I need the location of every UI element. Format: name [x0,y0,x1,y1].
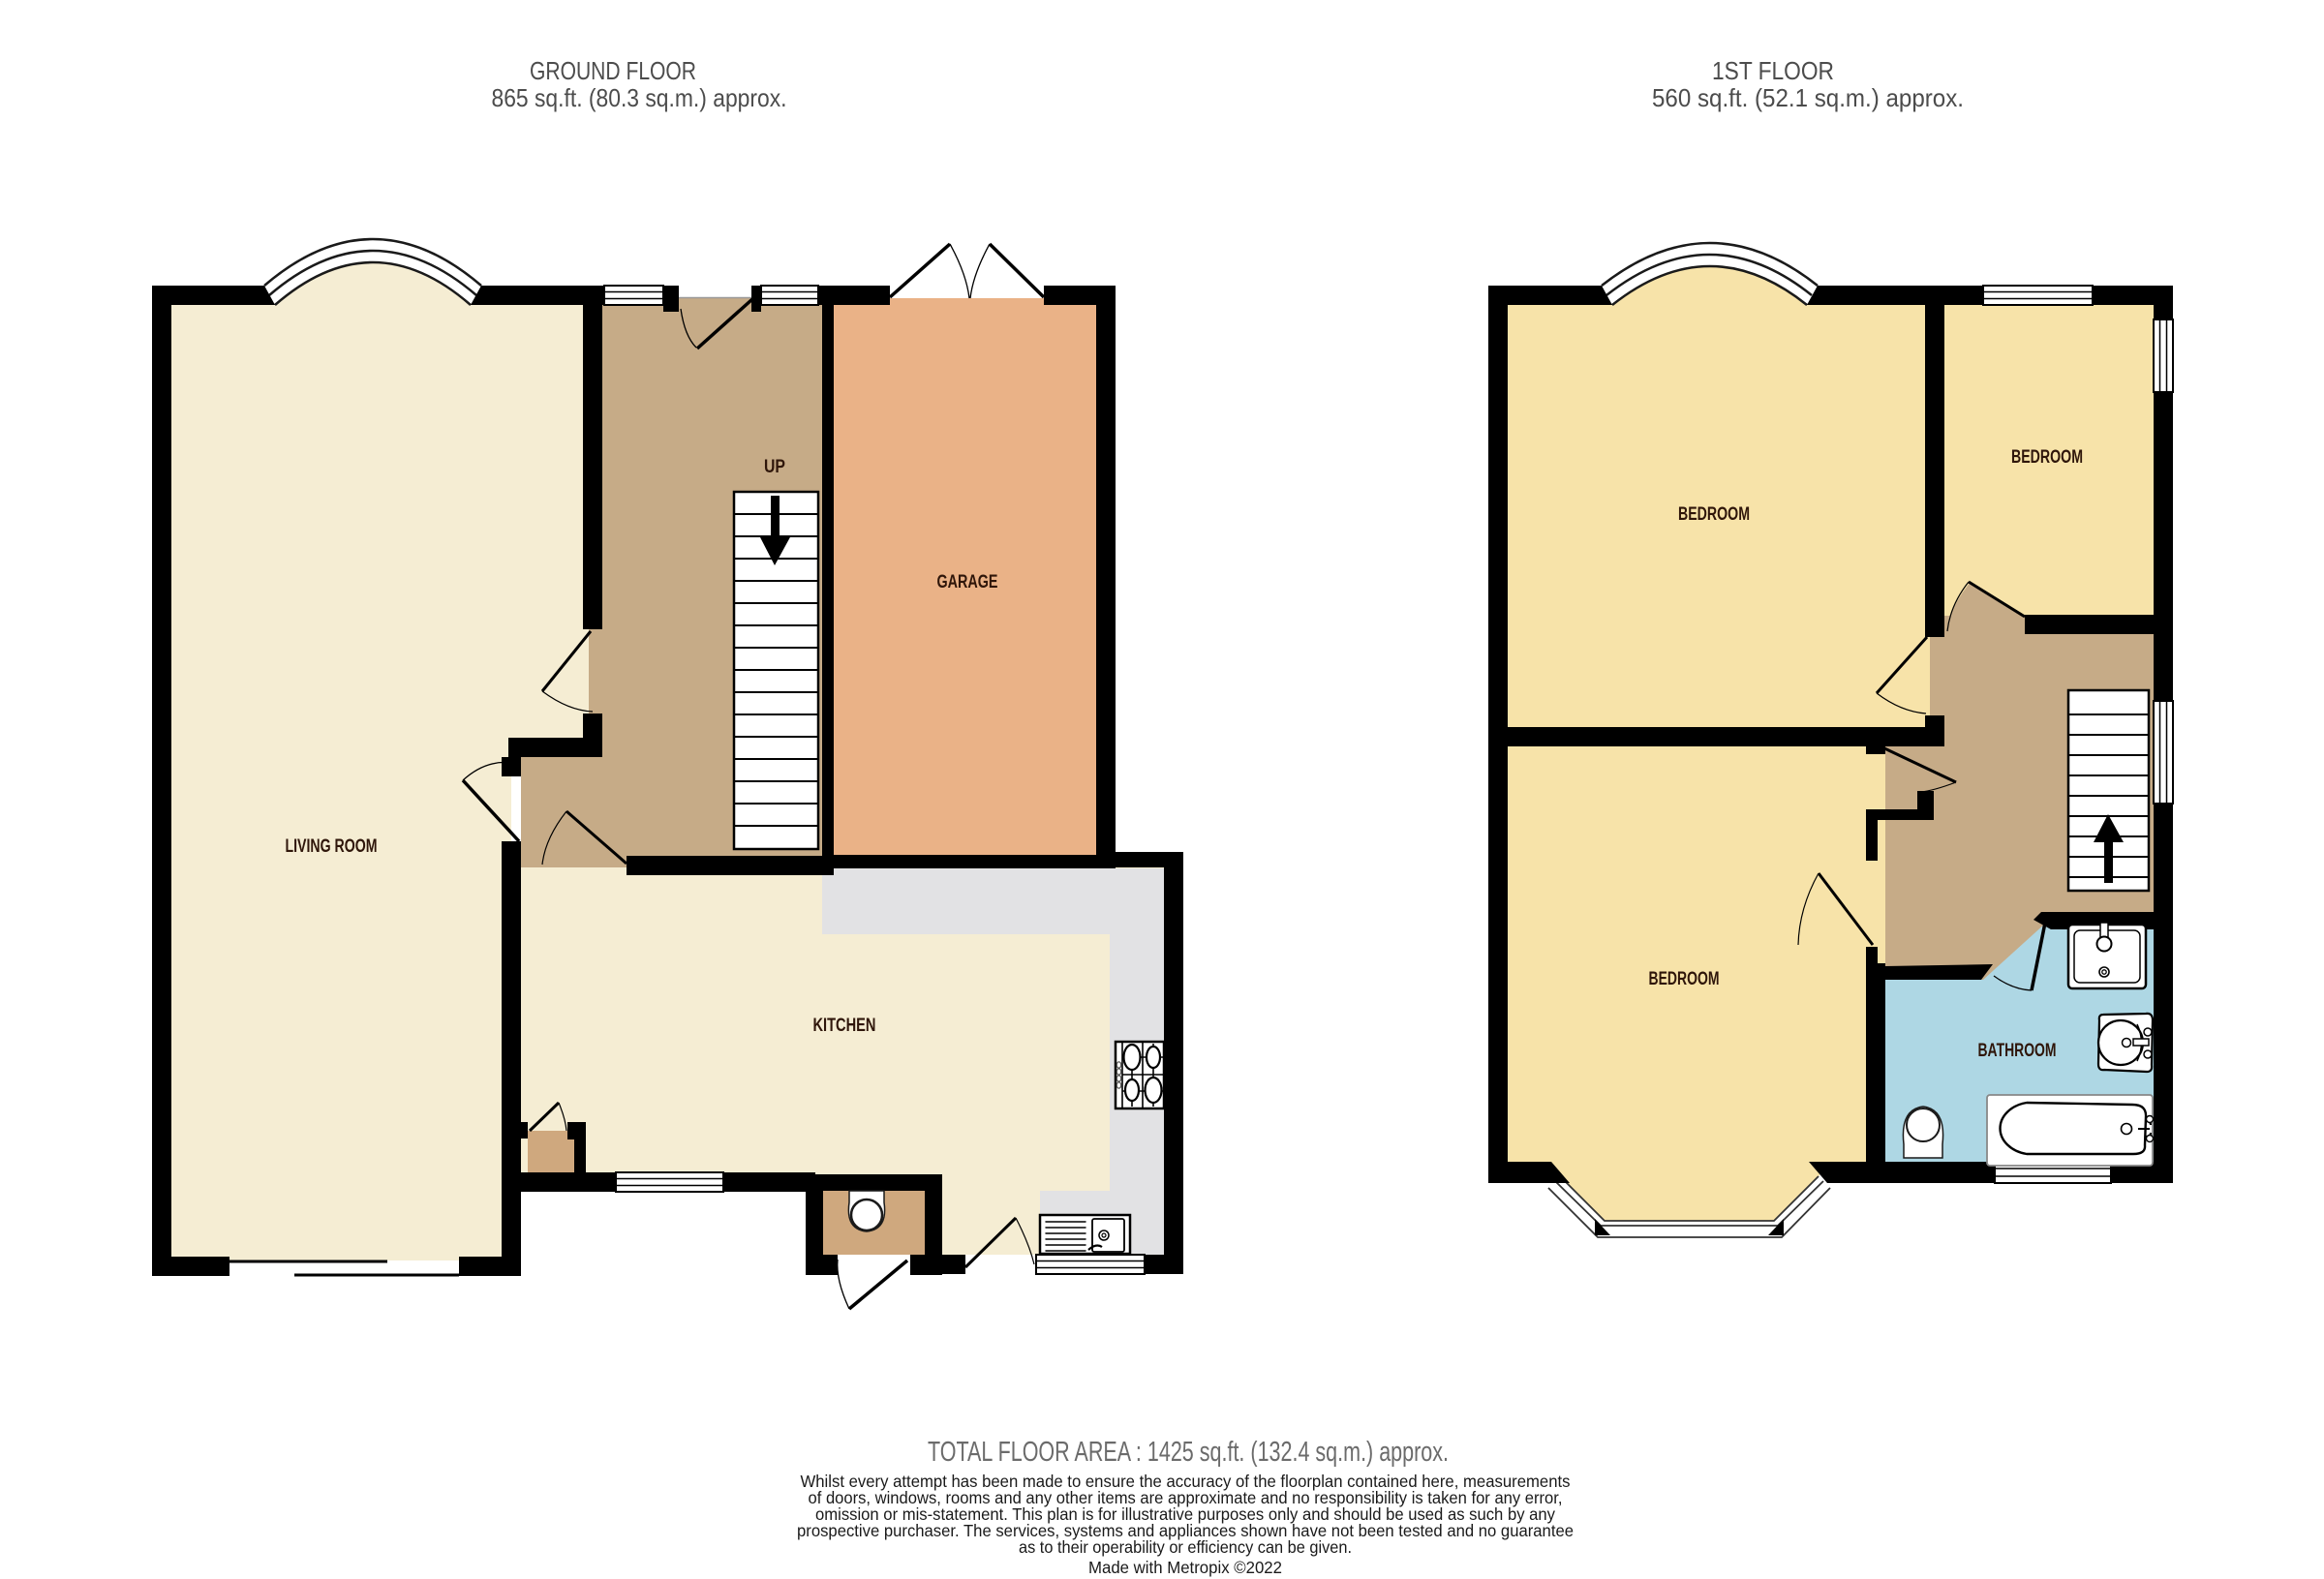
svg-text:GARAGE: GARAGE [937,572,998,592]
svg-text:GROUND FLOOR: GROUND FLOOR [530,56,696,85]
svg-text:BEDROOM: BEDROOM [1678,504,1750,525]
svg-text:BATHROOM: BATHROOM [1978,1041,2057,1061]
svg-text:BEDROOM: BEDROOM [1649,969,1720,989]
svg-text:865 sq.ft. (80.3 sq.m.) approx: 865 sq.ft. (80.3 sq.m.) approx. [492,83,787,112]
svg-text:1ST FLOOR: 1ST FLOOR [1712,56,1834,85]
svg-text:UP: UP [764,457,785,477]
svg-text:LIVING ROOM: LIVING ROOM [286,836,378,857]
svg-text:560 sq.ft. (52.1 sq.m.) approx: 560 sq.ft. (52.1 sq.m.) approx. [1652,83,1964,112]
svg-text:BEDROOM: BEDROOM [2011,447,2083,468]
svg-text:KITCHEN: KITCHEN [813,1016,876,1036]
svg-text:Made with Metropix ©2022: Made with Metropix ©2022 [1088,1558,1282,1577]
svg-text:TOTAL FLOOR AREA : 1425 sq.ft.: TOTAL FLOOR AREA : 1425 sq.ft. (132.4 sq… [928,1437,1449,1468]
svg-text:as to their operability or eff: as to their operability or efficiency ca… [1019,1537,1352,1557]
